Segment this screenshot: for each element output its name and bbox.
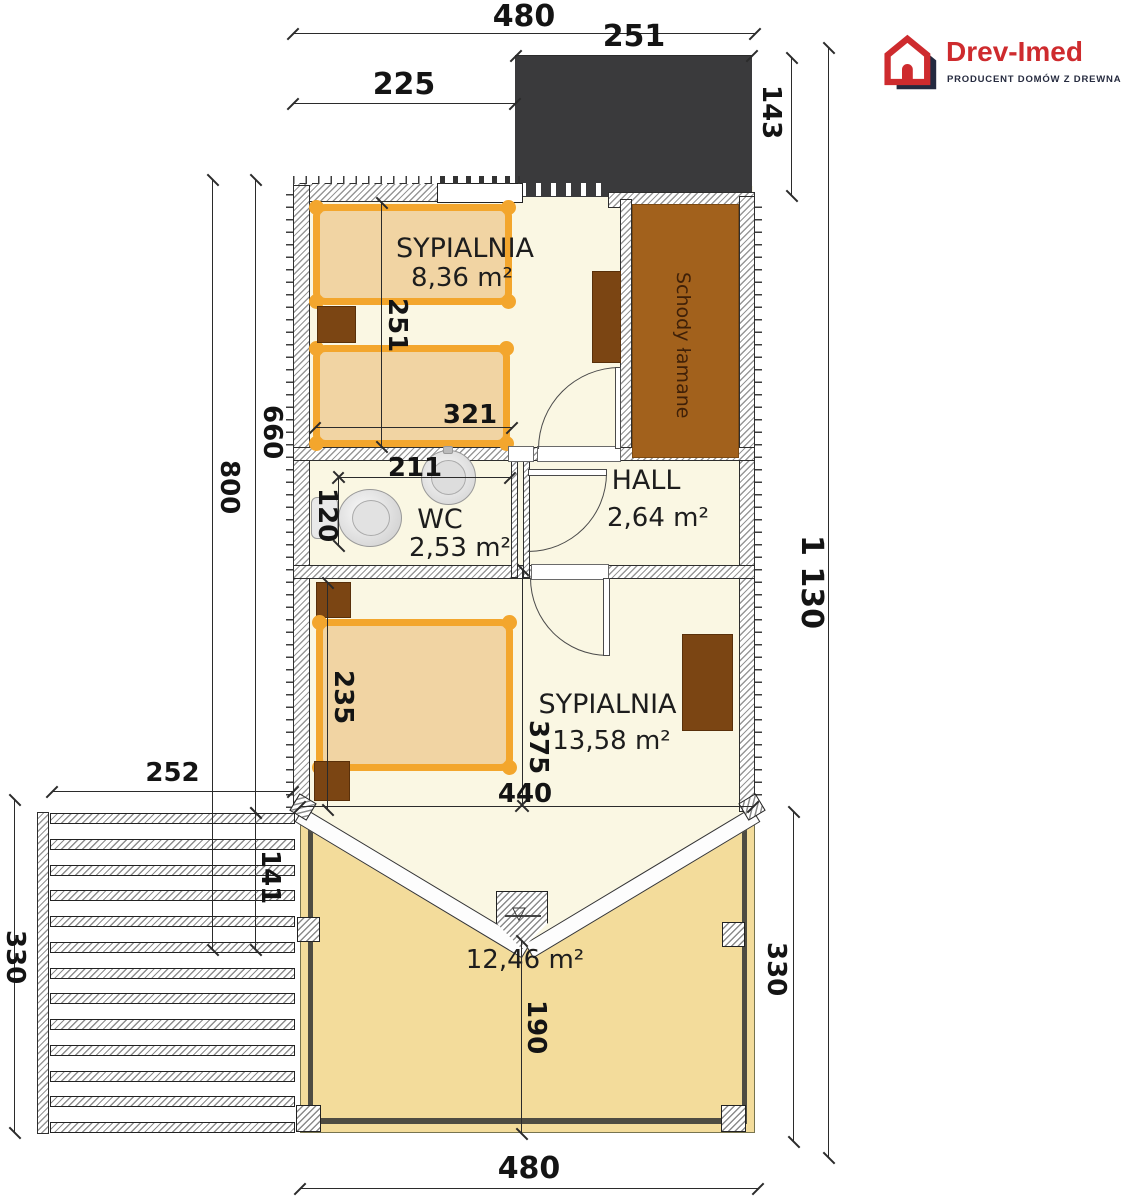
door-leaf-hall <box>528 469 607 476</box>
dim-top-left-offset-line <box>293 103 515 104</box>
bed-corner-dot <box>501 200 516 215</box>
dim-balcony-center-label: 190 <box>523 1000 549 1054</box>
dim-deck-width-line <box>52 791 293 792</box>
bed-corner-dot <box>309 200 324 215</box>
stairs-label: Schody łamane <box>672 272 694 422</box>
balcony-railing-left <box>308 818 313 1121</box>
wall-left <box>293 185 310 812</box>
dim-bedroom2-depth-label: 375 <box>525 720 551 774</box>
dim-bed1-spacing-label: 251 <box>384 298 410 352</box>
balcony-railing-bottom <box>308 1118 747 1124</box>
dim-bedroom2-width-label: 440 <box>460 781 590 807</box>
deck-plank <box>50 1019 295 1030</box>
dim-deck-inner-label: 141 <box>257 850 283 904</box>
bed-corner-dot <box>309 436 324 451</box>
dim-left-inner-label: 660 <box>259 405 285 459</box>
roof-overhang <box>515 55 752 197</box>
sink-faucet <box>443 446 453 454</box>
door-leaf-bedroom2 <box>603 578 610 656</box>
dim-wc-width-label: 211 <box>380 455 450 481</box>
log-teeth-window <box>440 176 520 184</box>
deck-plank <box>50 1071 295 1082</box>
bed-corner-dot <box>502 760 517 775</box>
nightstand-bedroom1 <box>317 306 356 343</box>
dim-balcony-height-label: 330 <box>763 942 789 996</box>
dim-roof-depth-line <box>791 58 792 196</box>
dim-deck-height-label: 330 <box>2 930 28 984</box>
dim-bed1-length-label: 321 <box>440 402 500 428</box>
balcony-post-left <box>297 917 320 942</box>
dim-total-height-label: 1 130 <box>796 535 826 629</box>
wall-right <box>739 196 755 812</box>
dim-bottom-width-line <box>300 1188 758 1189</box>
logo-subtitle: PRODUCENT DOMÓW Z DREWNA <box>947 74 1121 85</box>
bed-corner-dot <box>309 341 324 356</box>
roof-window-band <box>521 183 611 196</box>
bedroom2-name: SYPIALNIA <box>495 689 720 720</box>
dim-top-left-offset-label: 225 <box>293 70 515 100</box>
dim-left-outer-label: 800 <box>216 460 242 514</box>
dim-roof-width-line <box>516 55 752 56</box>
hall-area: 2,64 m² <box>607 504 707 534</box>
bed-corner-dot <box>499 341 514 356</box>
deck-plank <box>50 1122 295 1133</box>
dim-bottom-width-label: 480 <box>300 1154 758 1184</box>
dim-bed2-width-label: 235 <box>330 670 356 724</box>
deck-plank <box>50 1096 295 1107</box>
balcony-post-right <box>722 922 745 947</box>
bed-corner-dot <box>502 615 517 630</box>
bedroom1-name: SYPIALNIA <box>350 233 580 264</box>
balcony-railing-right <box>742 818 747 1121</box>
deck-plank <box>50 1045 295 1056</box>
toilet-bowl-inner <box>352 500 390 536</box>
hall-name: HALL <box>605 465 687 496</box>
balcony-post-bottom-right <box>721 1105 746 1132</box>
logo: Drev-Imed PRODUCENT DOMÓW Z DREWNA <box>884 30 1124 105</box>
deck-rail <box>37 812 49 1134</box>
dim-deck-width-label: 252 <box>52 760 293 786</box>
wall-bedroom1-stairs <box>620 199 632 450</box>
log-teeth-top <box>293 176 443 184</box>
deck-plank <box>50 839 295 850</box>
log-teeth-left <box>286 190 293 808</box>
logo-title: Drev-Imed <box>946 36 1083 68</box>
nightstand-bedroom2-bottom <box>314 761 350 801</box>
bed-corner-dot <box>312 615 327 630</box>
deck-plank <box>50 993 295 1004</box>
log-teeth-right <box>755 202 762 808</box>
door-opening-wc <box>508 446 534 462</box>
wardrobe-bedroom1 <box>592 271 621 363</box>
bed-single-2 <box>313 345 510 447</box>
wc-name: WC <box>405 504 475 535</box>
logo-house-icon <box>884 34 938 98</box>
dim-left-outer-line <box>212 180 213 950</box>
dim-roof-width-label: 251 <box>516 22 752 52</box>
dim-roof-depth-label: 143 <box>758 85 784 139</box>
dim-left-inner-line <box>255 180 256 813</box>
deck-plank <box>50 916 295 927</box>
bed-corner-dot <box>501 294 516 309</box>
balcony-area: 12,46 m² <box>450 946 600 976</box>
wc-area: 2,53 m² <box>400 534 520 564</box>
dim-balcony-height-line <box>793 812 794 1142</box>
floor-plan: Schody łamane ▽ <box>0 0 1132 1200</box>
dim-wc-depth-label: 120 <box>314 488 340 542</box>
door-leaf-bedroom1 <box>615 367 621 449</box>
deck-plank <box>50 968 295 979</box>
level-marker-icon: ▽ <box>512 903 526 924</box>
balcony-post-bottom-left <box>296 1105 321 1132</box>
